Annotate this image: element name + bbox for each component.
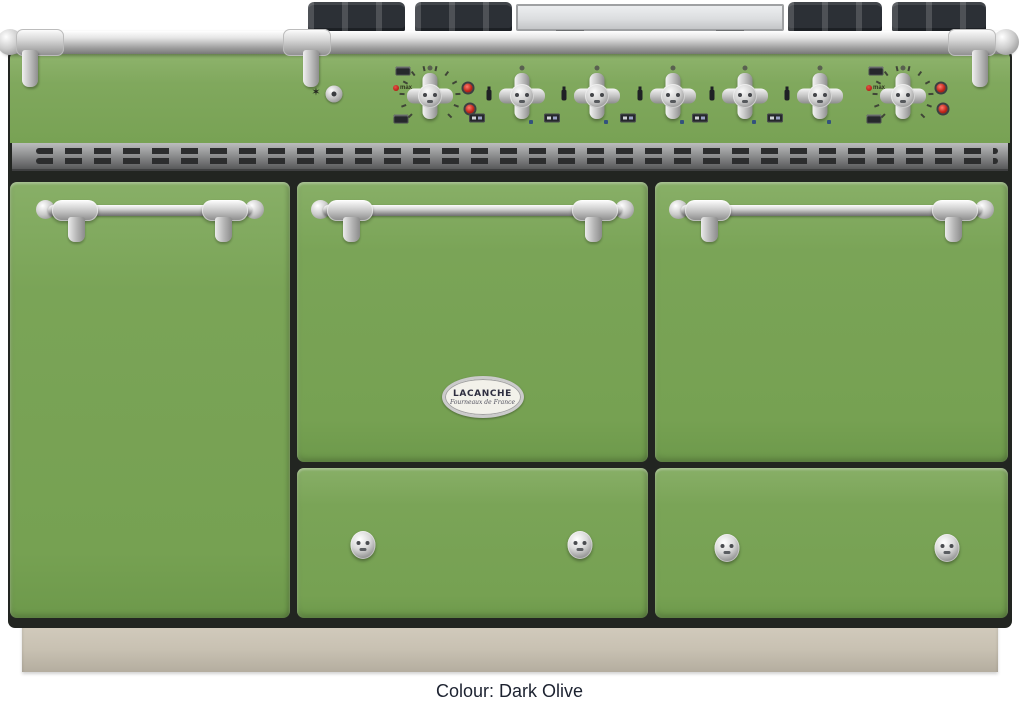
vent-slots: [36, 158, 998, 164]
burner-rating-icon: [767, 114, 783, 123]
knob-position-dot: [743, 66, 748, 71]
oven-mode-icon: [867, 115, 882, 124]
caption-text: Colour: Dark Olive: [0, 681, 1019, 702]
door-handle: [311, 195, 634, 241]
badge-subtitle: Fourneaux de France: [450, 399, 515, 406]
oven-indicator-light: [937, 84, 946, 93]
knob-center: [808, 84, 832, 108]
burner-mark: [604, 120, 608, 124]
gas-bottle-icon: [710, 90, 715, 101]
grill-mode-icon: [869, 67, 884, 76]
spark-icon: ✶: [311, 86, 320, 99]
handle-bracket: [701, 217, 718, 242]
dial-tick: [907, 66, 910, 71]
knob-position-dot: [818, 66, 823, 71]
dial-tick: [444, 71, 449, 76]
door-handle: [669, 195, 994, 241]
handle-bracket: [215, 217, 232, 242]
burner-grate-right: [788, 2, 986, 32]
handle-bracket: [945, 217, 962, 242]
dial-tick: [881, 113, 886, 118]
grate-section: [415, 2, 512, 32]
range-cooker-body: ✶ maxmax: [8, 50, 1012, 628]
grill-mode-icon: [396, 67, 411, 76]
dial-tick: [928, 93, 933, 95]
oven-indicator-light: [464, 84, 473, 93]
dial-tick: [434, 66, 437, 71]
gas-bottle-icon: [562, 90, 567, 101]
gas-bottle-icon: [638, 90, 643, 101]
dial-tick: [408, 113, 413, 118]
knob-center: [418, 84, 442, 108]
dial-tick: [423, 66, 426, 71]
storage-drawer-center: [297, 468, 648, 618]
knob-center: [891, 84, 915, 108]
drawer-knob: [935, 534, 960, 562]
knob-center: [510, 84, 534, 108]
dial-tick: [927, 104, 932, 108]
product-photo: ✶ maxmax: [0, 0, 1019, 706]
oven-mode-icon: [394, 115, 409, 124]
oven-door-right: [655, 182, 1008, 462]
rail-end-ball: [993, 29, 1019, 55]
plancha-griddle: [516, 4, 784, 31]
dial-mark-red: [393, 85, 399, 91]
dial-tick: [447, 113, 452, 118]
grate-section: [892, 2, 986, 32]
burner-mark: [827, 120, 831, 124]
dial-tick: [925, 81, 930, 85]
burner-rating-icon: [620, 114, 636, 123]
gas-bottle-icon: [487, 90, 492, 101]
grate-section: [308, 2, 405, 32]
dial-tick: [873, 93, 878, 95]
control-panel: ✶ maxmax: [10, 52, 1010, 143]
knob-center: [661, 84, 685, 108]
dial-tick: [400, 93, 405, 95]
towel-rail: [0, 31, 1016, 54]
dial-tick: [454, 104, 459, 108]
burner-mark: [529, 120, 533, 124]
burner-grate-left: [308, 2, 512, 32]
handle-bracket: [585, 217, 602, 242]
rail-bracket: [22, 50, 38, 87]
burner-mark: [680, 120, 684, 124]
dial-tick: [874, 104, 879, 108]
knob-position-dot: [520, 66, 525, 71]
handle-bracket: [68, 217, 85, 242]
drawer-knob: [715, 534, 740, 562]
oven-indicator-light: [466, 105, 475, 114]
dial-tick: [884, 71, 889, 76]
ignition-button: [326, 86, 343, 103]
dial-tick: [896, 66, 899, 71]
dial-tick: [452, 81, 457, 85]
rail-bracket: [972, 50, 988, 87]
oven-door-center: LACANCHE Fourneaux de France: [297, 182, 648, 462]
knob-position-dot: [428, 66, 433, 71]
rail-bracket: [303, 50, 319, 87]
vent-grille: [12, 143, 1008, 169]
knob-center: [585, 84, 609, 108]
max-label: max: [873, 85, 885, 91]
gas-bottle-icon: [785, 90, 790, 101]
vent-slots: [36, 148, 998, 154]
handle-bracket: [343, 217, 360, 242]
grate-section: [788, 2, 882, 32]
burner-rating-icon: [469, 114, 485, 123]
max-label: max: [400, 85, 412, 91]
knob-position-dot: [671, 66, 676, 71]
knob-center: [733, 84, 757, 108]
door-handle: [36, 195, 264, 241]
knob-position-dot: [901, 66, 906, 71]
dial-tick: [917, 71, 922, 76]
storage-drawer-right: [655, 468, 1008, 618]
dial-tick: [920, 113, 925, 118]
burner-rating-icon: [544, 114, 560, 123]
dial-tick: [455, 93, 460, 95]
plinth: [22, 622, 998, 672]
knob-position-dot: [595, 66, 600, 71]
burner-rating-icon: [692, 114, 708, 123]
badge-title: LACANCHE: [453, 389, 512, 399]
drawer-knob: [568, 531, 593, 559]
dial-tick: [401, 104, 406, 108]
burner-mark: [752, 120, 756, 124]
dial-tick: [411, 71, 416, 76]
oven-indicator-light: [939, 105, 948, 114]
oven-door-left: [10, 182, 290, 618]
lacanche-badge: LACANCHE Fourneaux de France: [442, 376, 524, 418]
drawer-knob: [351, 531, 376, 559]
dial-mark-red: [866, 85, 872, 91]
